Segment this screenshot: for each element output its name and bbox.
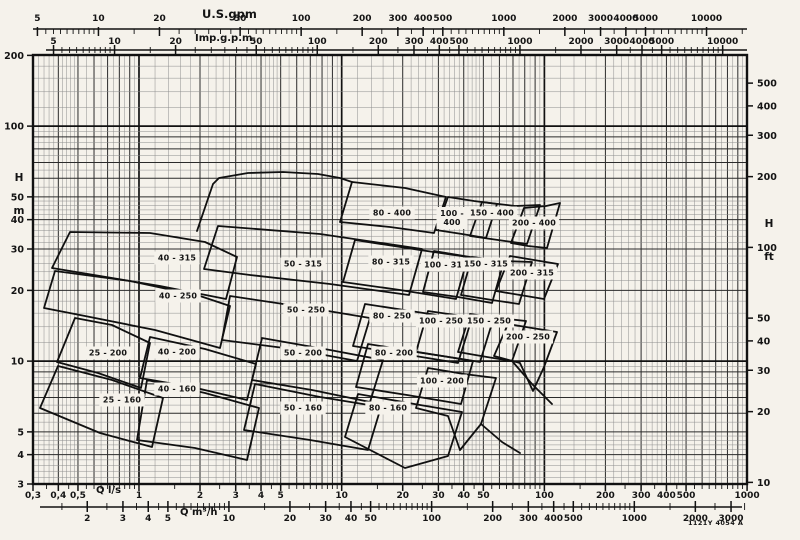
head-m-axis-title-line2: m — [8, 206, 30, 217]
q-ls-tick-label: 500 — [677, 491, 696, 501]
q-m3h-tick-label: 5 — [165, 514, 171, 524]
h-ft-tick-label: 500 — [757, 79, 777, 90]
q-ls-axis-title: Q l/s — [96, 485, 121, 496]
q-m3h-tick-label: 20 — [284, 514, 297, 524]
imp-gpm-tick-label: 2000 — [568, 37, 593, 47]
q-m3h-tick-label: 400 — [544, 514, 563, 524]
q-m3h-tick-label: 10 — [223, 514, 236, 524]
pump-field-label: 400 — [443, 218, 461, 227]
q-ls-tick-label: 1 — [136, 491, 142, 501]
q-ls-tick-label: 20 — [396, 491, 409, 501]
q-ls-tick-label: 3 — [233, 491, 239, 501]
h-m-tick-label: 5 — [17, 427, 24, 438]
imp-gpm-tick-label: 100 — [308, 37, 327, 47]
h-m-tick-label: 10 — [11, 357, 25, 368]
pump-field-label: 100 - — [440, 209, 464, 218]
us-gpm-tick-label: 400 — [414, 14, 433, 24]
pump-field-label: 150 - 315 — [464, 260, 508, 269]
q-ls-tick-label: 30 — [432, 491, 445, 501]
us-gpm-tick-label: 300 — [388, 14, 407, 24]
h-m-tick-label: 100 — [4, 122, 24, 133]
pump-field-label: 80 - 400 — [373, 209, 412, 218]
head-m-axis-title-line1: H — [8, 173, 30, 184]
pump-field-label: 150 - 250 — [467, 317, 511, 326]
imp-gpm-tick-label: 5000 — [649, 37, 674, 47]
head-ft-axis-title-line1: H — [757, 219, 781, 230]
imp-gpm-tick-label: 300 — [405, 37, 424, 47]
pump-field-label: 80 - 250 — [373, 312, 412, 321]
us-gpm-tick-label: 3000 — [588, 14, 613, 24]
q-m3h-tick-label: 300 — [519, 514, 538, 524]
h-ft-tick-label: 20 — [757, 407, 771, 418]
us-gpm-tick-label: 10000 — [691, 14, 722, 24]
head-ft-axis-title-line2: ft — [757, 252, 781, 263]
us-gpm-tick-label: 20 — [153, 14, 166, 24]
q-m3h-tick-label: 3 — [120, 514, 126, 524]
pump-field-label: 25 - 160 — [103, 396, 142, 405]
pump-field-label: 50 - 200 — [284, 349, 323, 358]
pump-field-label: 200 - 250 — [506, 333, 550, 342]
q-ls-tick-label: 300 — [632, 491, 651, 501]
q-ls-tick-label: 2 — [197, 491, 203, 501]
q-ls-tick-label: 200 — [596, 491, 615, 501]
pump-field-outline-40-315 — [52, 232, 237, 299]
imp-gpm-axis-title: Imp.g.p.m. — [195, 33, 256, 44]
us-gpm-tick-label: 5000 — [633, 14, 658, 24]
imp-gpm-tick-label: 20 — [169, 37, 182, 47]
q-m3h-tick-label: 4 — [145, 514, 151, 524]
pump-field-label: 50 - 160 — [284, 404, 323, 413]
drawing-number-watermark: 1121Y 4054 A — [688, 519, 743, 527]
h-ft-tick-label: 40 — [757, 336, 771, 347]
pump-field-label: 50 - 315 — [284, 260, 323, 269]
us-gpm-tick-label: 2000 — [552, 14, 577, 24]
h-m-tick-label: 30 — [11, 245, 25, 256]
us-gpm-tick-label: 5 — [34, 14, 40, 24]
q-ls-tick-label: 40 — [457, 491, 470, 501]
pump-field-label: 80 - 200 — [375, 349, 414, 358]
q-m3h-axis-title: Q m³/h — [180, 507, 218, 518]
imp-gpm-tick-label: 400 — [430, 37, 449, 47]
imp-gpm-tick-label: 500 — [450, 37, 469, 47]
us-gpm-tick-label: 200 — [353, 14, 372, 24]
q-m3h-tick-label: 500 — [564, 514, 583, 524]
range-envelope-line — [197, 172, 352, 231]
h-m-tick-label: 200 — [4, 51, 24, 62]
imp-gpm-tick-label: 10000 — [707, 37, 738, 47]
us-gpm-tick-label: 1000 — [491, 14, 516, 24]
q-m3h-tick-label: 200 — [483, 514, 502, 524]
us-gpm-tick-label: 100 — [292, 14, 311, 24]
imp-gpm-tick-label: 3000 — [604, 37, 629, 47]
pump-range-chart-board: 5102050100200300400500100020003000400050… — [0, 0, 800, 540]
imp-gpm-tick-label: 5 — [50, 37, 56, 47]
pump-field-label: 25 - 200 — [89, 349, 128, 358]
us-gpm-axis-title: U.S.gpm — [202, 7, 257, 21]
q-ls-tick-label: 1000 — [735, 491, 760, 501]
pump-field-label: 200 - 315 — [510, 269, 554, 278]
h-ft-tick-label: 50 — [757, 314, 771, 325]
imp-gpm-tick-label: 1000 — [507, 37, 532, 47]
imp-gpm-tick-label: 10 — [108, 37, 121, 47]
h-ft-tick-label: 30 — [757, 366, 771, 377]
q-m3h-tick-label: 2 — [84, 514, 90, 524]
us-gpm-tick-label: 10 — [92, 14, 105, 24]
imp-gpm-tick-label: 200 — [369, 37, 388, 47]
pump-field-label: 80 - 315 — [372, 258, 411, 267]
head-ft-axis-title: H ft — [757, 197, 781, 285]
head-m-axis-title: H m — [8, 151, 30, 239]
h-ft-tick-label: 400 — [757, 101, 777, 112]
pump-field-label: 100 - 200 — [420, 377, 464, 386]
pump-field-label: 40 - 250 — [159, 292, 198, 301]
q-ls-tick-label: 100 — [535, 491, 554, 501]
q-ls-tick-label: 50 — [477, 491, 490, 501]
pump-field-label: 200 - 400 — [512, 219, 556, 228]
q-m3h-tick-label: 50 — [364, 514, 377, 524]
pump-field-label: 80 - 160 — [369, 404, 408, 413]
q-ls-tick-label: 0,5 — [70, 491, 86, 501]
h-ft-tick-label: 200 — [757, 172, 777, 183]
q-ls-tick-label: 0,3 — [25, 491, 41, 501]
q-ls-tick-label: 0,4 — [50, 491, 66, 501]
range-envelope-line — [481, 424, 520, 453]
pump-field-label: 50 - 250 — [287, 306, 326, 315]
h-ft-tick-label: 300 — [757, 131, 777, 142]
q-m3h-tick-label: 30 — [319, 514, 332, 524]
q-m3h-tick-label: 1000 — [622, 514, 647, 524]
q-ls-tick-label: 10 — [335, 491, 348, 501]
q-ls-tick-label: 5 — [278, 491, 284, 501]
q-m3h-tick-label: 100 — [422, 514, 441, 524]
h-m-tick-label: 20 — [11, 286, 25, 297]
h-ft-tick-label: 10 — [757, 478, 771, 489]
us-gpm-tick-label: 500 — [433, 14, 452, 24]
q-ls-tick-label: 400 — [657, 491, 676, 501]
pump-field-label: 40 - 160 — [158, 385, 197, 394]
pump-range-chart-canvas: 5102050100200300400500100020003000400050… — [0, 0, 800, 540]
pump-field-label: 100 - 250 — [419, 317, 463, 326]
pump-field-label: 40 - 200 — [158, 348, 197, 357]
h-m-tick-label: 4 — [17, 450, 24, 461]
h-m-tick-label: 3 — [17, 480, 24, 491]
q-ls-tick-label: 4 — [258, 491, 264, 501]
pump-field-label: 40 - 315 — [158, 254, 197, 263]
pump-field-label: 150 - 400 — [470, 209, 514, 218]
q-m3h-tick-label: 40 — [345, 514, 358, 524]
